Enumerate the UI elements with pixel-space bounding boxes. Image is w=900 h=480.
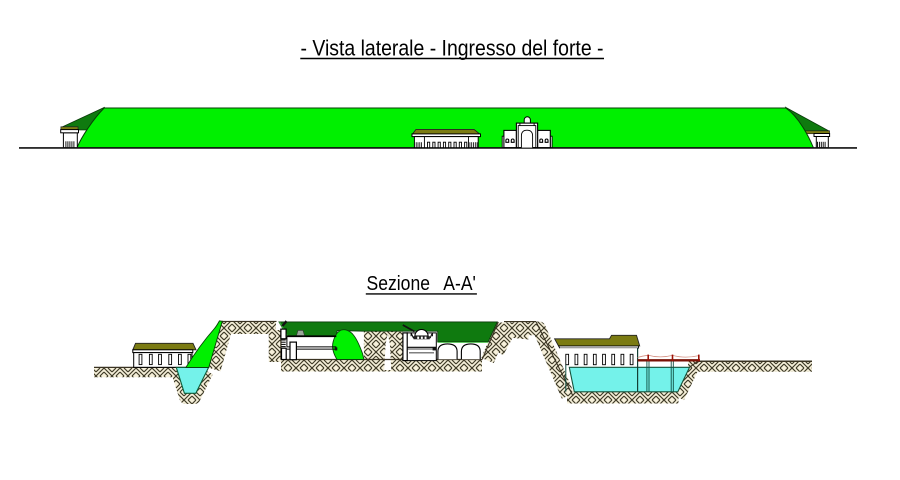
svg-text:A-A': A-A' [443, 273, 476, 295]
svg-text:- Vista laterale - Ingresso de: - Vista laterale - Ingresso del forte - [301, 36, 604, 61]
svg-text:Sezione: Sezione [367, 273, 431, 295]
